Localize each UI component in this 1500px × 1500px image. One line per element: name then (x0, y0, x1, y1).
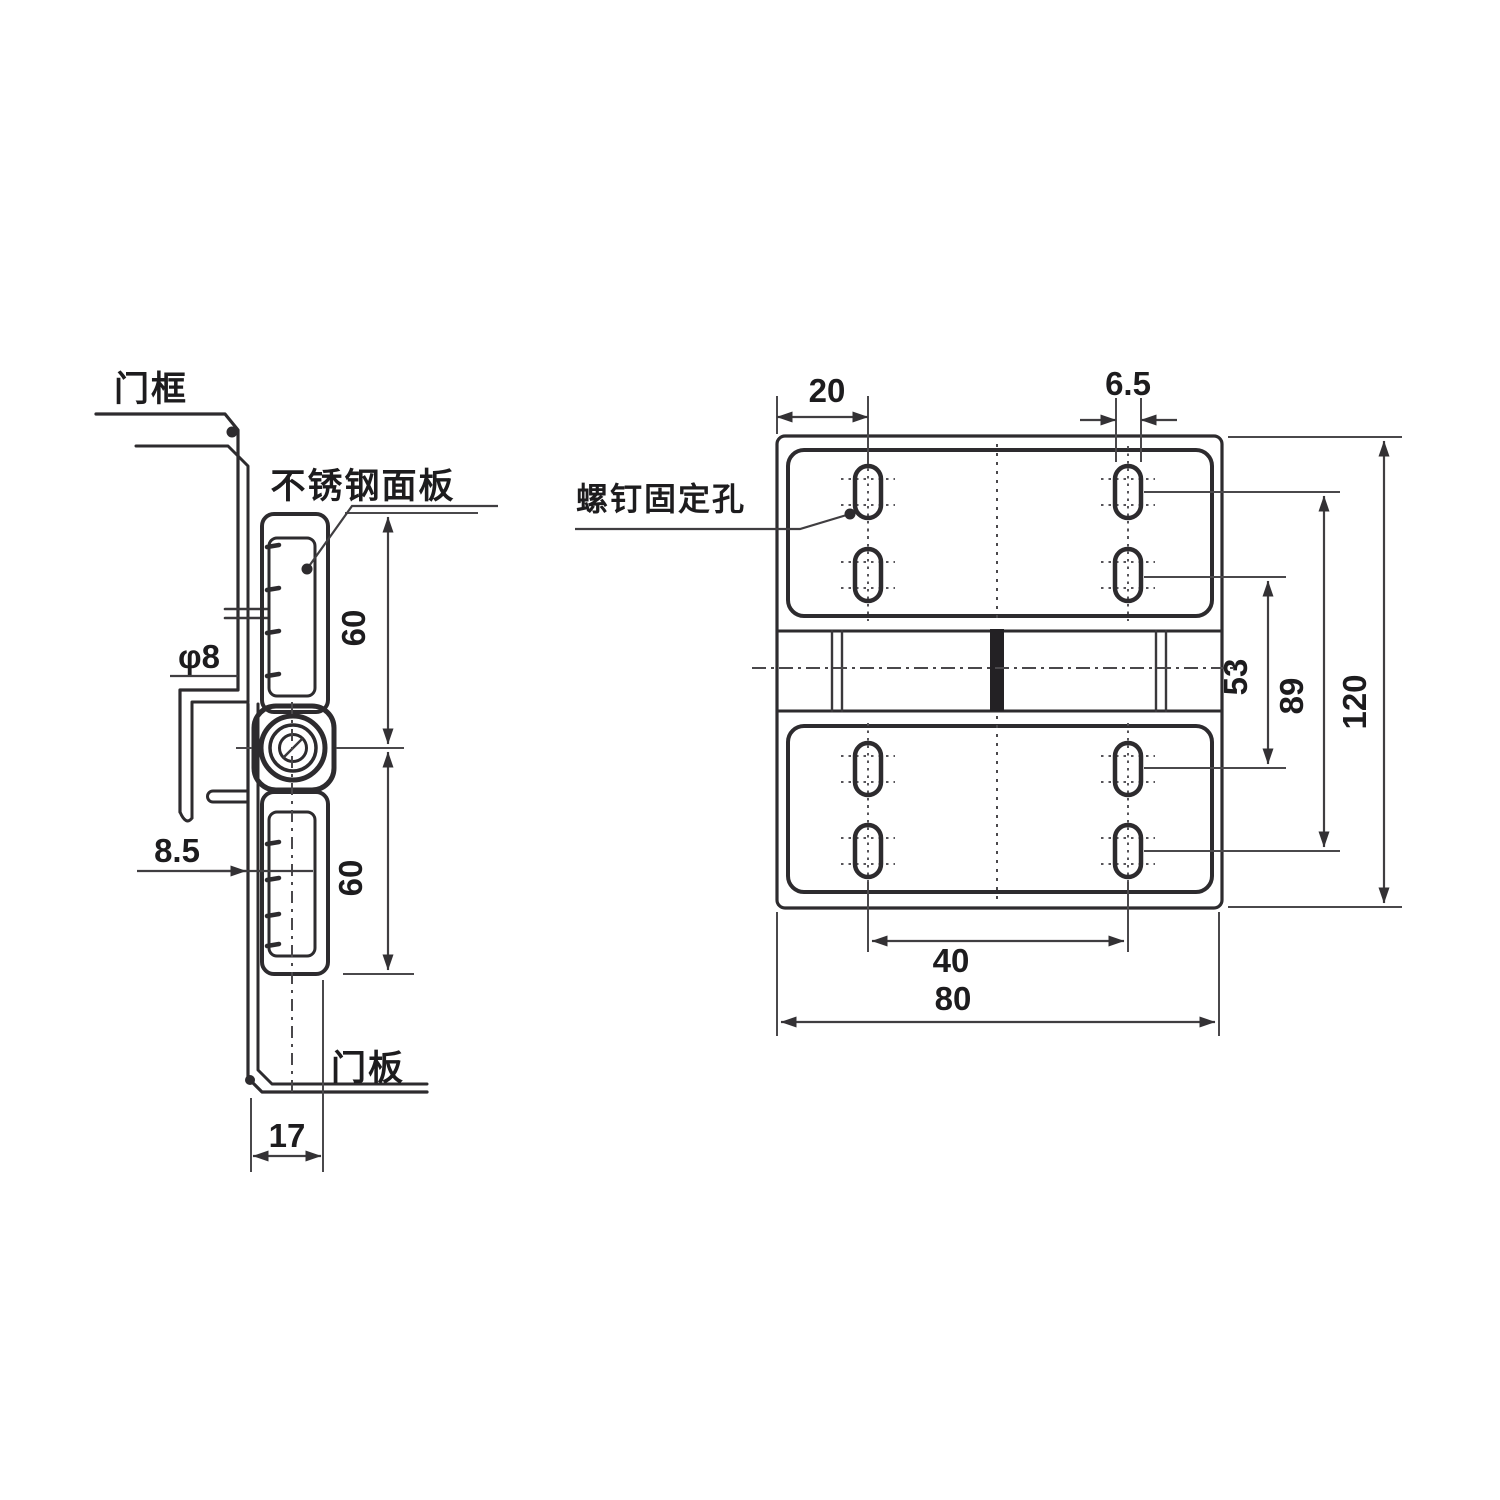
door-frame-flange-edge (180, 812, 192, 821)
label-door-frame: 门框 (114, 370, 188, 409)
leader-stainless-panel (307, 506, 498, 569)
label-screw-holes: 螺钉固定孔 (576, 481, 746, 517)
ext-lines-120 (1228, 437, 1402, 907)
frame-bend-dot (227, 427, 238, 438)
dim-text-60-lower: 60 (332, 860, 369, 897)
leader-dot-stainless-panel (302, 564, 313, 575)
hinge-engineering-drawing: 60 60 φ8 8.5 17 门框 不锈钢面板 门板 (0, 0, 1500, 1500)
dim-text-53: 53 (1217, 659, 1254, 696)
label-stainless-panel: 不锈钢面板 (270, 467, 455, 506)
leader-dot-screw-holes (845, 509, 856, 520)
upper-leaf-side (262, 514, 328, 712)
dim-text-8-5: 8.5 (154, 832, 200, 869)
ext-lines-6-5 (1116, 398, 1141, 462)
ext-lines-80 (777, 912, 1219, 1036)
panel-bend-dot (245, 1075, 255, 1085)
dim-text-20: 20 (809, 372, 846, 409)
dim-text-phi8: φ8 (178, 638, 220, 675)
lower-leaf-front (788, 726, 1212, 892)
front-view: 螺钉固定孔 20 6.5 53 89 120 40 80 (575, 365, 1402, 1036)
side-view: 60 60 φ8 8.5 17 门框 不锈钢面板 门板 (96, 370, 498, 1172)
dim-text-40: 40 (933, 942, 970, 979)
dim-text-6-5: 6.5 (1105, 365, 1151, 402)
hinge-pin-bar (990, 629, 1004, 711)
door-frame-outline-outer (96, 414, 238, 812)
dim-text-17: 17 (269, 1117, 306, 1154)
dim-text-60-upper: 60 (335, 610, 372, 647)
upper-leaf-front (788, 450, 1212, 616)
dim-text-80: 80 (935, 980, 972, 1017)
door-frame-outline-inner (136, 446, 248, 818)
label-door-panel: 门板 (331, 1049, 405, 1088)
dim-text-89: 89 (1273, 678, 1310, 715)
technical-drawing-page: 60 60 φ8 8.5 17 门框 不锈钢面板 门板 (0, 0, 1500, 1500)
dim-text-120: 120 (1336, 674, 1373, 729)
door-panel-flange (208, 791, 249, 802)
